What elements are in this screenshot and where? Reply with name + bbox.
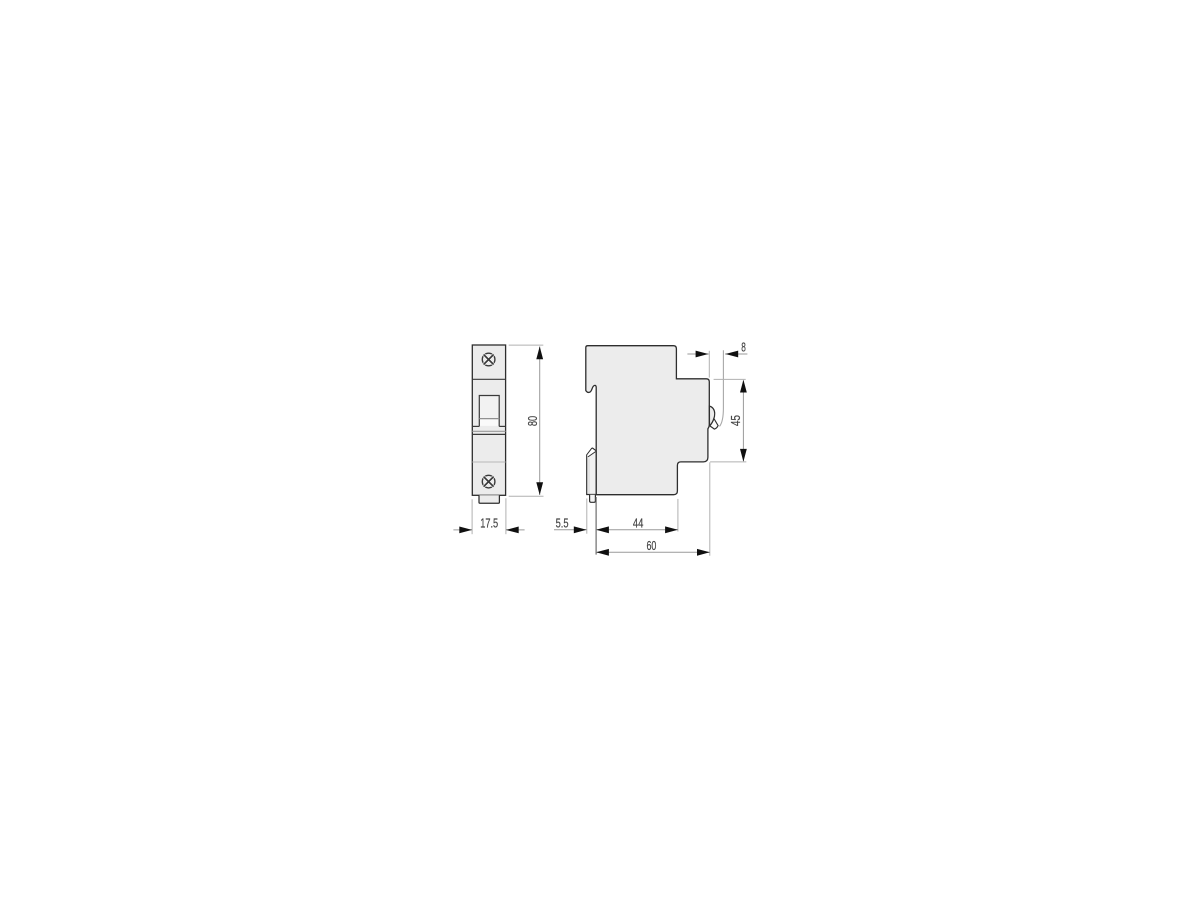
svg-text:45: 45 bbox=[729, 415, 743, 426]
svg-text:60: 60 bbox=[646, 539, 656, 553]
svg-text:5.5: 5.5 bbox=[556, 516, 569, 530]
svg-text:8: 8 bbox=[741, 340, 746, 354]
svg-text:44: 44 bbox=[633, 517, 644, 531]
svg-text:80: 80 bbox=[526, 416, 540, 426]
svg-text:17.5: 17.5 bbox=[480, 517, 498, 531]
